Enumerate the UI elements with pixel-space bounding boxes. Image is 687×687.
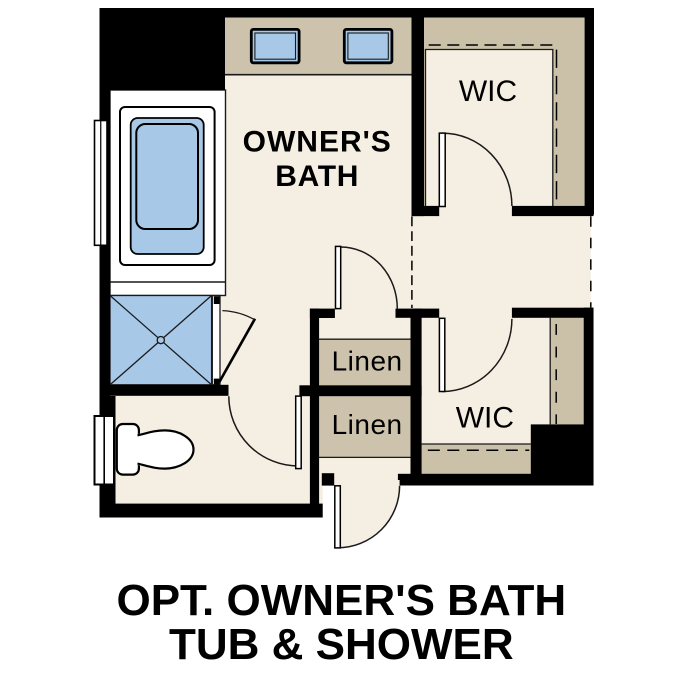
svg-text:WIC: WIC [456, 401, 514, 434]
svg-text:OWNER'S: OWNER'S [243, 126, 392, 159]
svg-text:WIC: WIC [459, 75, 517, 108]
svg-text:Linen: Linen [332, 345, 403, 376]
svg-text:BATH: BATH [275, 160, 359, 193]
svg-text:Linen: Linen [332, 409, 403, 440]
svg-text:OPT. OWNER'S BATH: OPT. OWNER'S BATH [116, 576, 566, 625]
svg-text:TUB & SHOWER: TUB & SHOWER [169, 620, 514, 669]
